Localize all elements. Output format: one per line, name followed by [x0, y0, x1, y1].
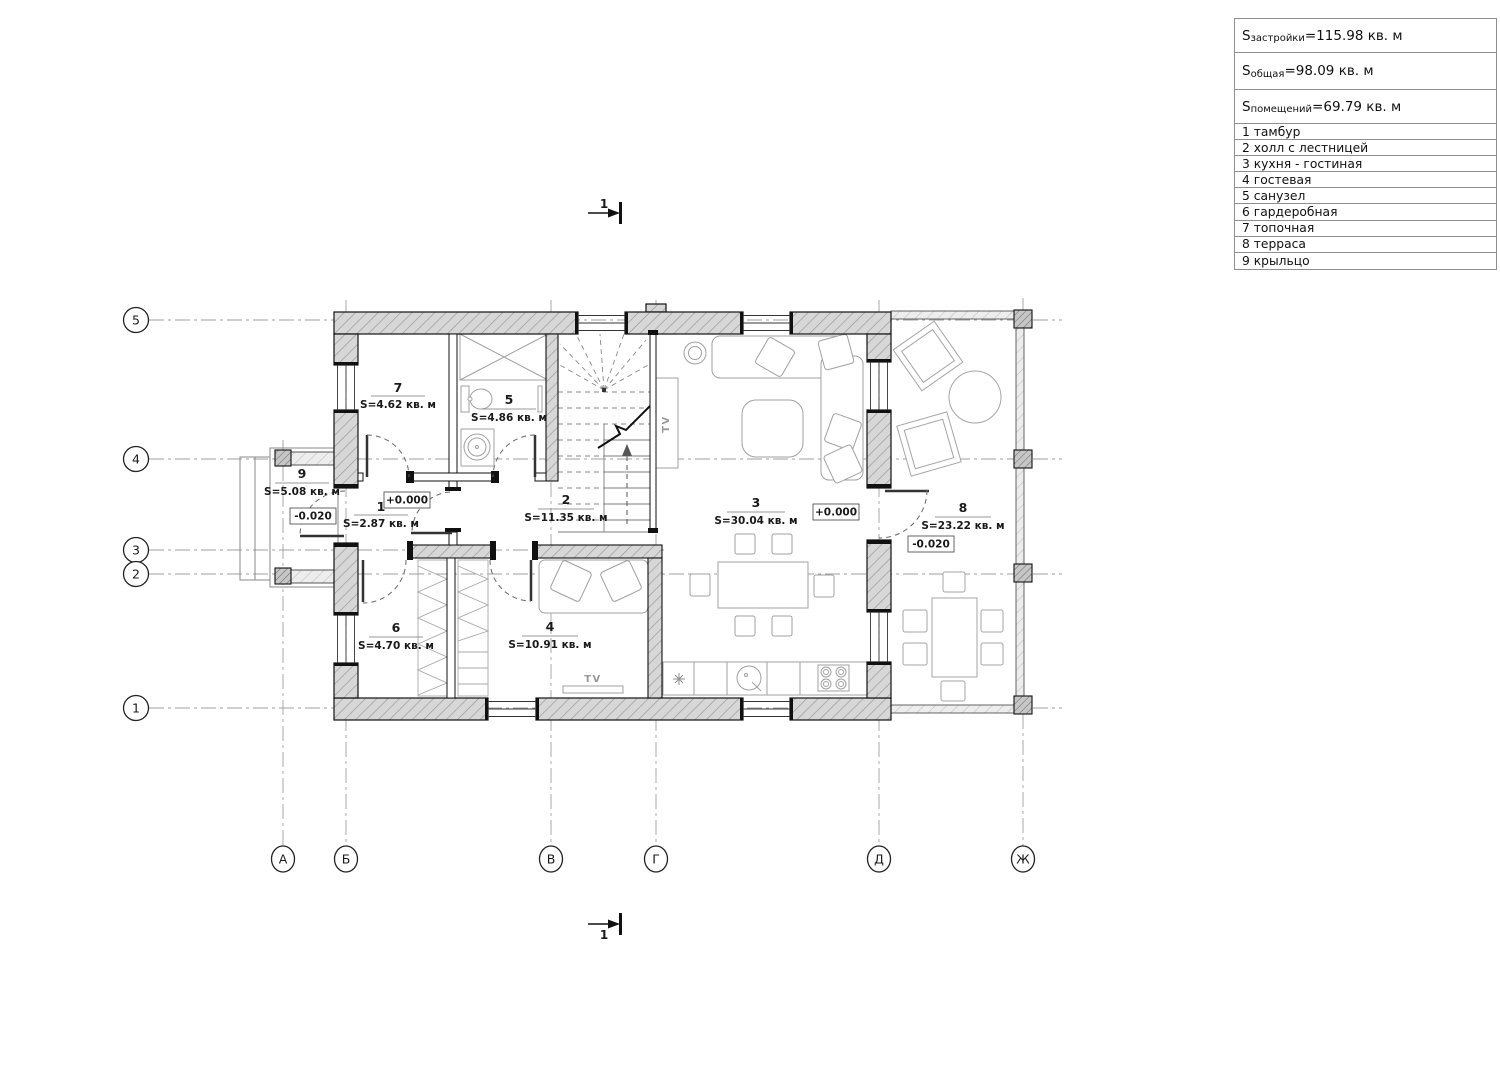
- axis-label-v: В: [547, 852, 556, 867]
- axis-row-labels: 5 4 3 2 1: [132, 313, 140, 716]
- window-stairs-top: [578, 316, 625, 331]
- svg-text:S=30.04 кв. м: S=30.04 кв. м: [714, 515, 797, 527]
- window-room6: [338, 615, 355, 663]
- svg-text:S=23.22 кв. м: S=23.22 кв. м: [921, 520, 1004, 532]
- lounge-chair-1: [893, 321, 963, 391]
- svg-text:4: 4: [546, 619, 555, 634]
- kitchen-sink: [737, 666, 761, 690]
- legend-room-3: 3 кухня - гостиная: [1235, 156, 1496, 172]
- svg-text:S=4.70 кв. м: S=4.70 кв. м: [358, 640, 434, 652]
- room-label-4: 4 S=10.91 кв. м: [508, 619, 591, 651]
- toilet-bowl: [470, 389, 492, 409]
- area-symbol: S: [1242, 63, 1251, 79]
- axis-label-d: Д: [874, 852, 884, 867]
- living-room-furniture: [656, 334, 863, 484]
- stair-break-line: [598, 404, 652, 448]
- lounge-chair-2: [897, 412, 961, 476]
- svg-text:S=11.35 кв. м: S=11.35 кв. м: [524, 512, 607, 524]
- chimney: [646, 304, 666, 312]
- area-symbol: S: [1242, 28, 1251, 44]
- guest-tv-stand: [563, 686, 623, 693]
- axis-label-a: А: [279, 852, 288, 867]
- room-label-2: 2 S=11.35 кв. м: [524, 492, 607, 524]
- axis-col-labels: А Б В Г Д Ж: [279, 852, 1031, 867]
- svg-text:+0.000: +0.000: [815, 507, 857, 519]
- svg-text:S=4.86 кв. м: S=4.86 кв. м: [471, 412, 547, 424]
- axis-label-1: 1: [132, 701, 140, 716]
- area-value: =98.09 кв. м: [1284, 63, 1373, 79]
- legend-room-5: 5 санузел: [1235, 188, 1496, 204]
- guest-door-swing: [490, 560, 531, 601]
- axis-label-4: 4: [132, 452, 140, 467]
- section-mark-top: 1: [588, 197, 622, 224]
- bath-door-swing: [493, 435, 535, 477]
- svg-text:S=4.62 кв. м: S=4.62 кв. м: [360, 399, 436, 411]
- axis-label-g: Г: [652, 852, 660, 867]
- svg-text:1: 1: [600, 928, 608, 942]
- window-kitchen-right-lower: [871, 612, 888, 662]
- elevation-living: +0.000: [813, 504, 859, 520]
- wardrobe-door-swing: [363, 560, 406, 603]
- terrace-lounge-furniture: [893, 321, 1001, 476]
- window-living-right-upper: [871, 362, 888, 410]
- closet-room4: [458, 560, 488, 696]
- stair-up-arrow: [622, 444, 632, 456]
- room-label-6: 6 S=4.70 кв. м: [358, 620, 434, 652]
- terrace-door-swing: [879, 490, 927, 538]
- staircase: [558, 334, 652, 532]
- tv-label-living: TV: [661, 415, 672, 433]
- room-label-7: 7 S=4.62 кв. м: [360, 380, 436, 411]
- legend-room-4: 4 гостевая: [1235, 172, 1496, 188]
- room-label-8: 8 S=23.22 кв. м: [921, 500, 1004, 532]
- wardrobe-rail-room6: [418, 560, 447, 696]
- round-table: [949, 371, 1001, 423]
- svg-text:3: 3: [752, 495, 761, 510]
- towel-rail: [538, 386, 542, 412]
- legend-room-7: 7 топочная: [1235, 221, 1496, 237]
- guest-room-furniture: [539, 560, 648, 693]
- svg-text:S=10.91 кв. м: S=10.91 кв. м: [508, 639, 591, 651]
- svg-text:2: 2: [562, 492, 571, 507]
- section-mark-bottom: 1: [588, 913, 622, 942]
- dining-set: [690, 534, 834, 636]
- legend-room-8: 8 терраса: [1235, 237, 1496, 253]
- svg-text:1: 1: [600, 197, 608, 211]
- legend-room-1: 1 тамбур: [1235, 124, 1496, 140]
- axis-label-5: 5: [132, 313, 140, 328]
- svg-text:6: 6: [392, 620, 401, 635]
- legend-room-2: 2 холл с лестницей: [1235, 140, 1496, 156]
- window-living-top: [743, 316, 790, 331]
- elevation-vestibule: +0.000: [384, 492, 430, 508]
- room-label-9: 9 S=5.08 кв. м: [264, 466, 340, 498]
- legend-area-built: Sзастройки=115.98 кв. м: [1235, 19, 1496, 53]
- legend-table: Sзастройки=115.98 кв. м Sобщая=98.09 кв.…: [1234, 18, 1497, 270]
- coffee-table: [742, 400, 803, 457]
- area-symbol: S: [1242, 99, 1251, 115]
- axis-label-3: 3: [132, 543, 140, 558]
- room-label-3: 3 S=30.04 кв. м: [714, 495, 797, 527]
- svg-text:7: 7: [394, 380, 403, 395]
- elevation-porch: -0.020: [290, 508, 336, 524]
- window-living-bottom: [743, 702, 790, 717]
- winder-center: [602, 388, 606, 392]
- terrace-dining-set: [903, 572, 1003, 701]
- boiler-door-swing: [367, 435, 409, 477]
- legend-area-total: Sобщая=98.09 кв. м: [1235, 53, 1496, 90]
- elevation-terrace: -0.020: [908, 536, 954, 552]
- axis-label-2: 2: [132, 567, 140, 582]
- area-value: =115.98 кв. м: [1305, 28, 1403, 44]
- svg-text:+0.000: +0.000: [386, 495, 428, 507]
- legend-room-9: 9 крыльцо: [1235, 253, 1496, 269]
- svg-text:9: 9: [298, 466, 307, 481]
- kitchen: [663, 662, 867, 695]
- window-room7: [338, 365, 355, 410]
- legend-room-6: 6 гардеробная: [1235, 204, 1496, 220]
- axis-row-circles: [124, 308, 149, 721]
- area-value: =69.79 кв. м: [1312, 99, 1401, 115]
- svg-text:8: 8: [959, 500, 968, 515]
- axis-label-zh: Ж: [1016, 852, 1030, 867]
- window-guest-bottom: [488, 702, 536, 717]
- dining-table: [718, 562, 808, 608]
- axis-label-b: Б: [342, 852, 351, 867]
- floor-plan-sheet: 5 4 3 2 1 А Б В Г Д Ж: [0, 0, 1500, 1086]
- svg-text:-0.020: -0.020: [294, 511, 332, 523]
- tv-label-guest: TV: [584, 674, 602, 685]
- terrace-table: [932, 598, 977, 677]
- svg-text:5: 5: [505, 392, 514, 407]
- fridge-snowflake-icon: [673, 673, 685, 685]
- svg-text:S=2.87 кв. м: S=2.87 кв. м: [343, 518, 419, 530]
- legend-area-rooms: Sпомещений=69.79 кв. м: [1235, 90, 1496, 124]
- svg-text:-0.020: -0.020: [912, 539, 950, 551]
- svg-text:S=5.08 кв. м: S=5.08 кв. м: [264, 486, 340, 498]
